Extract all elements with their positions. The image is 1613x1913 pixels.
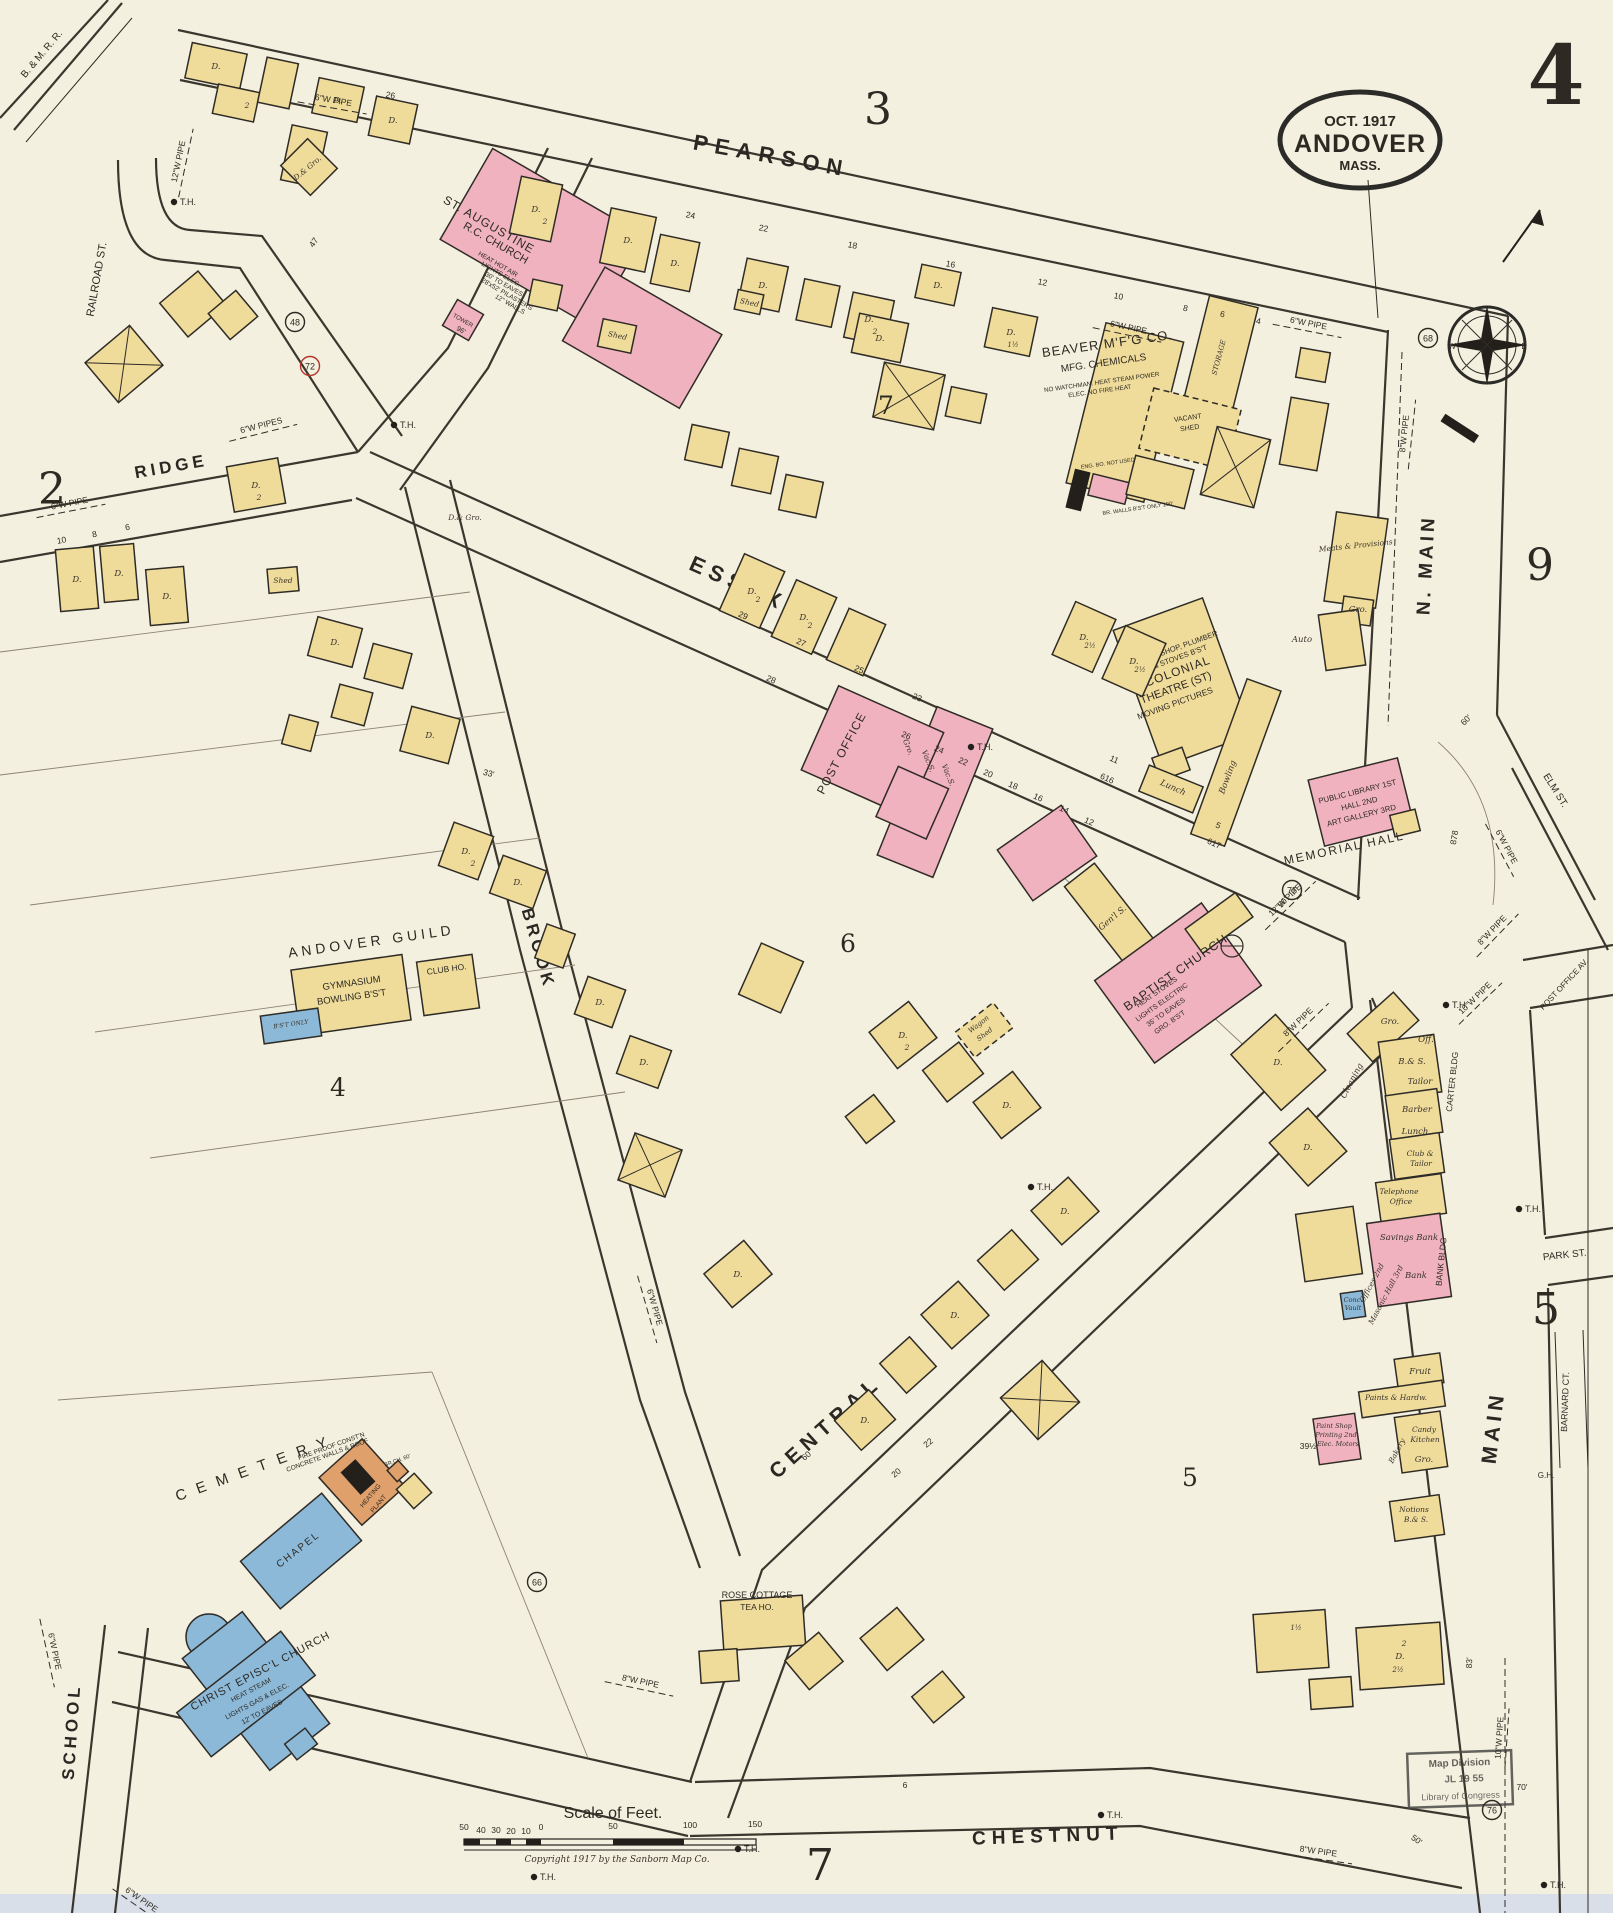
map-annotation: Gro. bbox=[1381, 1017, 1400, 1027]
svg-text:Club &: Club & bbox=[1407, 1149, 1434, 1158]
svg-text:D.: D. bbox=[113, 569, 123, 579]
svg-text:Auto: Auto bbox=[1291, 635, 1312, 645]
svg-text:D.: D. bbox=[1272, 1058, 1282, 1068]
map-annotation: Tailor bbox=[1408, 1077, 1434, 1087]
map-annotation: 2½ bbox=[1391, 1666, 1403, 1674]
svg-text:D.: D. bbox=[387, 116, 397, 126]
map-annotation: D. bbox=[1394, 1652, 1404, 1662]
map-annotation: 150 bbox=[748, 1819, 762, 1829]
map-annotation: 40 bbox=[476, 1825, 486, 1835]
map-annotation: Gro. bbox=[1349, 605, 1368, 615]
svg-text:Gro.: Gro. bbox=[1415, 1455, 1434, 1465]
svg-text:2: 2 bbox=[256, 493, 262, 502]
block-6: 6 bbox=[840, 929, 856, 958]
compass-east: E bbox=[1521, 342, 1526, 351]
svg-text:D.: D. bbox=[897, 1031, 907, 1041]
svg-text:T.H.: T.H. bbox=[1107, 1810, 1123, 1820]
svg-text:D.: D. bbox=[460, 847, 470, 857]
map-annotation: 26 bbox=[385, 89, 396, 101]
svg-text:Conc.: Conc. bbox=[1344, 1296, 1363, 1304]
map-annotation: D. bbox=[897, 1031, 907, 1041]
svg-text:Notions: Notions bbox=[1398, 1505, 1429, 1514]
stamp-date: OCT. 1917 bbox=[1324, 113, 1396, 130]
map-annotation: D. bbox=[113, 569, 123, 579]
map-annotation: 10 bbox=[521, 1826, 531, 1836]
svg-text:T.H.: T.H. bbox=[180, 197, 196, 207]
svg-text:Shed: Shed bbox=[273, 576, 292, 585]
svg-text:Printing 2nd: Printing 2nd bbox=[1314, 1431, 1356, 1439]
svg-text:50: 50 bbox=[608, 1821, 618, 1831]
svg-text:Elec. Motors: Elec. Motors bbox=[1316, 1440, 1360, 1448]
map-annotation: D. bbox=[1001, 1101, 1011, 1111]
svg-text:T.H.: T.H. bbox=[1452, 1000, 1468, 1010]
svg-text:2: 2 bbox=[470, 859, 476, 868]
map-annotation: Vault bbox=[1345, 1304, 1362, 1312]
svg-text:30: 30 bbox=[491, 1825, 501, 1835]
map-annotation: Shed bbox=[273, 576, 292, 585]
svg-text:D.: D. bbox=[669, 259, 679, 269]
svg-text:D.: D. bbox=[250, 481, 260, 491]
map-annotation: 30 bbox=[491, 1825, 501, 1835]
svg-text:0: 0 bbox=[539, 1822, 544, 1832]
svg-text:2: 2 bbox=[755, 595, 761, 604]
svg-text:B.& S.: B.& S. bbox=[1397, 1057, 1425, 1067]
svg-text:2: 2 bbox=[904, 1043, 910, 1052]
svg-text:Barber: Barber bbox=[1401, 1105, 1433, 1115]
svg-text:2: 2 bbox=[807, 621, 813, 630]
svg-text:D.: D. bbox=[161, 592, 171, 602]
svg-text:D.: D. bbox=[863, 315, 873, 325]
map-annotation: 2 bbox=[755, 595, 761, 604]
svg-text:66: 66 bbox=[532, 1577, 542, 1587]
svg-text:2: 2 bbox=[1401, 1639, 1407, 1648]
map-annotation: D. bbox=[424, 731, 434, 741]
svg-text:2½: 2½ bbox=[1133, 666, 1145, 674]
map-annotation: D.& Gro. bbox=[447, 513, 482, 522]
adjacent-right-mid: 5 bbox=[1532, 1284, 1560, 1335]
svg-text:D.: D. bbox=[329, 638, 339, 648]
map-annotation: Savings Bank bbox=[1380, 1233, 1438, 1243]
svg-text:D.: D. bbox=[949, 1311, 959, 1321]
map-annotation: Paint Shop bbox=[1315, 1422, 1352, 1430]
map-annotation: Office bbox=[1390, 1197, 1413, 1206]
svg-text:2½: 2½ bbox=[1083, 642, 1095, 650]
svg-text:48: 48 bbox=[290, 317, 300, 327]
svg-text:Lunch: Lunch bbox=[1401, 1127, 1429, 1137]
svg-text:D.: D. bbox=[71, 575, 81, 585]
stamp-city: ANDOVER bbox=[1294, 130, 1426, 158]
map-annotation: 39½ bbox=[1300, 1441, 1317, 1451]
svg-text:72: 72 bbox=[305, 361, 315, 371]
map-annotation: B.& S. bbox=[1403, 1515, 1428, 1524]
svg-text:1½: 1½ bbox=[1290, 1624, 1301, 1632]
svg-text:B.& S.: B.& S. bbox=[1403, 1515, 1428, 1524]
map-annotation: Paints & Hardw. bbox=[1364, 1393, 1427, 1402]
map-annotation: D. bbox=[638, 1058, 648, 1068]
map-annotation: 0 bbox=[539, 1822, 544, 1832]
svg-text:D.: D. bbox=[932, 281, 942, 291]
svg-text:D.: D. bbox=[512, 878, 522, 888]
map-annotation: D. bbox=[1059, 1207, 1069, 1217]
sheet-number: 4 bbox=[1527, 28, 1584, 124]
svg-text:100: 100 bbox=[683, 1820, 697, 1830]
svg-text:68: 68 bbox=[1423, 333, 1433, 343]
map-annotation: 1½ bbox=[1007, 341, 1018, 349]
map-annotation: 6 bbox=[903, 1780, 908, 1790]
loc-line1: Map Division bbox=[1428, 1757, 1490, 1770]
svg-text:G.H.: G.H. bbox=[1538, 1471, 1554, 1480]
svg-text:2: 2 bbox=[244, 101, 250, 110]
svg-text:Bank: Bank bbox=[1404, 1271, 1427, 1281]
svg-text:Fruit: Fruit bbox=[1408, 1367, 1431, 1377]
map-annotation: 50 bbox=[608, 1821, 618, 1831]
map-annotation: Barber bbox=[1401, 1105, 1433, 1115]
copyright: Copyright 1917 by the Sanborn Map Co. bbox=[524, 1855, 709, 1865]
map-annotation: 2 bbox=[256, 493, 262, 502]
svg-text:Gro.: Gro. bbox=[1381, 1017, 1400, 1027]
svg-text:D.: D. bbox=[757, 281, 767, 291]
map-annotation: 70' bbox=[1516, 1782, 1527, 1792]
map-annotation: Fruit bbox=[1408, 1367, 1431, 1377]
svg-text:D.: D. bbox=[210, 62, 220, 72]
block-7: 7 bbox=[878, 391, 894, 420]
svg-text:D.: D. bbox=[1302, 1143, 1312, 1153]
map-annotation: Lunch bbox=[1401, 1127, 1429, 1137]
svg-text:10: 10 bbox=[521, 1826, 531, 1836]
sanborn-map-page: B. & M. R. R. bbox=[0, 0, 1613, 1913]
map-annotation: 2 bbox=[807, 621, 813, 630]
svg-text:40: 40 bbox=[476, 1825, 486, 1835]
map-annotation: Printing 2nd bbox=[1314, 1431, 1356, 1439]
svg-text:D.: D. bbox=[1394, 1652, 1404, 1662]
svg-text:2: 2 bbox=[542, 217, 548, 226]
map-annotation: 100 bbox=[683, 1820, 697, 1830]
svg-text:D.: D. bbox=[859, 1416, 869, 1426]
svg-text:83': 83' bbox=[1464, 1657, 1475, 1669]
map-annotation: 2 bbox=[872, 327, 878, 336]
svg-text:T.H.: T.H. bbox=[977, 742, 993, 752]
svg-text:Gro.: Gro. bbox=[1349, 605, 1368, 615]
map-annotation: D. bbox=[1302, 1143, 1312, 1153]
svg-text:150: 150 bbox=[748, 1819, 762, 1829]
map-annotation: Candy bbox=[1412, 1425, 1437, 1434]
map-annotation: D. bbox=[210, 62, 220, 72]
stamp-state: MASS. bbox=[1339, 158, 1380, 173]
svg-text:Kitchen: Kitchen bbox=[1409, 1435, 1439, 1444]
map-annotation: 10 bbox=[56, 534, 67, 546]
map-annotation: 2 bbox=[1401, 1639, 1407, 1648]
map-annotation: G.H. bbox=[1538, 1471, 1554, 1480]
svg-text:Savings Bank: Savings Bank bbox=[1380, 1233, 1438, 1243]
map-annotation: 2 bbox=[904, 1043, 910, 1052]
map-annotation: Telephone bbox=[1379, 1187, 1419, 1196]
scale-title: Scale of Feet. bbox=[564, 1805, 663, 1822]
map-annotation: Notions bbox=[1398, 1505, 1429, 1514]
svg-text:D.: D. bbox=[424, 731, 434, 741]
map-annotation: Conc. bbox=[1344, 1296, 1363, 1304]
map-annotation: 83' bbox=[1464, 1657, 1475, 1669]
adjacent-right: 9 bbox=[1526, 540, 1554, 591]
svg-text:39½: 39½ bbox=[1300, 1441, 1317, 1451]
map-annotation: B.& S. bbox=[1397, 1057, 1425, 1067]
svg-text:D.: D. bbox=[732, 1270, 742, 1280]
map-annotation: Tailor bbox=[1410, 1159, 1432, 1168]
svg-text:Paints & Hardw.: Paints & Hardw. bbox=[1364, 1393, 1427, 1402]
block-4: 4 bbox=[330, 1073, 346, 1102]
svg-text:D.: D. bbox=[1001, 1101, 1011, 1111]
svg-text:T.H.: T.H. bbox=[744, 1844, 760, 1854]
svg-text:D.: D. bbox=[638, 1058, 648, 1068]
adjacent-top: 3 bbox=[864, 84, 892, 135]
svg-text:20: 20 bbox=[506, 1826, 516, 1836]
svg-text:26: 26 bbox=[385, 89, 396, 101]
map-annotation: Gro. bbox=[1415, 1455, 1434, 1465]
svg-text:50: 50 bbox=[459, 1822, 469, 1832]
map-annotation: D. bbox=[530, 205, 540, 215]
map-annotation: D. bbox=[71, 575, 81, 585]
map-annotation: D. bbox=[329, 638, 339, 648]
map-annotation: D. bbox=[932, 281, 942, 291]
map-annotation: D. bbox=[757, 281, 767, 291]
compass-west: W bbox=[1448, 342, 1456, 351]
svg-text:T.H.: T.H. bbox=[400, 420, 416, 430]
map-annotation: Elec. Motors bbox=[1316, 1440, 1360, 1448]
svg-text:Tailor: Tailor bbox=[1408, 1077, 1434, 1087]
svg-text:T.H.: T.H. bbox=[540, 1872, 556, 1882]
svg-text:D.: D. bbox=[1005, 328, 1015, 338]
svg-text:D.: D. bbox=[594, 998, 604, 1008]
map-annotation: D. bbox=[863, 315, 873, 325]
svg-text:2½: 2½ bbox=[1391, 1666, 1403, 1674]
svg-text:1½: 1½ bbox=[1007, 341, 1018, 349]
svg-text:70': 70' bbox=[1516, 1782, 1527, 1792]
map-annotation: D. bbox=[669, 259, 679, 269]
svg-text:TEA HO.: TEA HO. bbox=[740, 1602, 774, 1612]
map-annotation: 2 bbox=[542, 217, 548, 226]
scan-edge bbox=[0, 1894, 1613, 1913]
svg-text:ROSE COTTAGE: ROSE COTTAGE bbox=[722, 1590, 793, 1600]
svg-text:D.: D. bbox=[622, 236, 632, 246]
svg-text:Off.: Off. bbox=[1418, 1035, 1434, 1045]
adjacent-bottom: 7 bbox=[806, 1840, 834, 1891]
svg-text:Paint Shop: Paint Shop bbox=[1315, 1422, 1352, 1430]
block-5: 5 bbox=[1182, 1463, 1198, 1492]
map-annotation: 2 bbox=[244, 101, 250, 110]
svg-text:D.: D. bbox=[332, 96, 342, 106]
svg-text:76: 76 bbox=[1487, 1805, 1497, 1815]
svg-text:D.: D. bbox=[1059, 1207, 1069, 1217]
map-annotation: Kitchen bbox=[1409, 1435, 1439, 1444]
map-annotation: 50 bbox=[459, 1822, 469, 1832]
map-annotation: D. bbox=[622, 236, 632, 246]
map-annotation: D. bbox=[250, 481, 260, 491]
map-annotation: 2½ bbox=[1083, 642, 1095, 650]
map-annotation: D. bbox=[594, 998, 604, 1008]
map-annotation: D. bbox=[949, 1311, 959, 1321]
svg-text:Office: Office bbox=[1390, 1197, 1413, 1206]
map-annotation: 2 bbox=[470, 859, 476, 868]
map-annotation: Auto bbox=[1291, 635, 1312, 645]
svg-text:Tailor: Tailor bbox=[1410, 1159, 1432, 1168]
map-annotation: D. bbox=[1005, 328, 1015, 338]
map-annotation: D. bbox=[332, 96, 342, 106]
map-annotation: 1½ bbox=[1290, 1624, 1301, 1632]
map-annotation: D. bbox=[460, 847, 470, 857]
svg-text:Candy: Candy bbox=[1412, 1425, 1437, 1434]
street-barnard: BARNARD CT. bbox=[1559, 1372, 1571, 1432]
svg-text:6: 6 bbox=[903, 1780, 908, 1790]
map-annotation: D. bbox=[161, 592, 171, 602]
map-annotation: Club & bbox=[1407, 1149, 1434, 1158]
svg-text:D.& Gro.: D.& Gro. bbox=[447, 513, 482, 522]
map-annotation: D. bbox=[732, 1270, 742, 1280]
svg-text:T.H.: T.H. bbox=[1037, 1182, 1053, 1192]
svg-text:T.H.: T.H. bbox=[1525, 1204, 1541, 1214]
loc-line2: JL 19 55 bbox=[1444, 1773, 1484, 1785]
svg-text:Telephone: Telephone bbox=[1379, 1187, 1419, 1196]
map-annotation: 20 bbox=[506, 1826, 516, 1836]
svg-text:2: 2 bbox=[872, 327, 878, 336]
map-annotation: D. bbox=[387, 116, 397, 126]
svg-text:Vault: Vault bbox=[1345, 1304, 1362, 1312]
map-annotation: D. bbox=[1272, 1058, 1282, 1068]
svg-text:75: 75 bbox=[1287, 885, 1297, 895]
map-annotation: Off. bbox=[1418, 1035, 1434, 1045]
svg-text:10: 10 bbox=[56, 534, 67, 546]
map-annotation: 2½ bbox=[1133, 666, 1145, 674]
svg-text:T.H.: T.H. bbox=[1550, 1880, 1566, 1890]
map-annotation: D. bbox=[859, 1416, 869, 1426]
svg-text:D.: D. bbox=[530, 205, 540, 215]
map-annotation: D. bbox=[512, 878, 522, 888]
map-annotation: Bank bbox=[1404, 1271, 1427, 1281]
sanborn-map: B. & M. R. R. bbox=[0, 0, 1613, 1913]
